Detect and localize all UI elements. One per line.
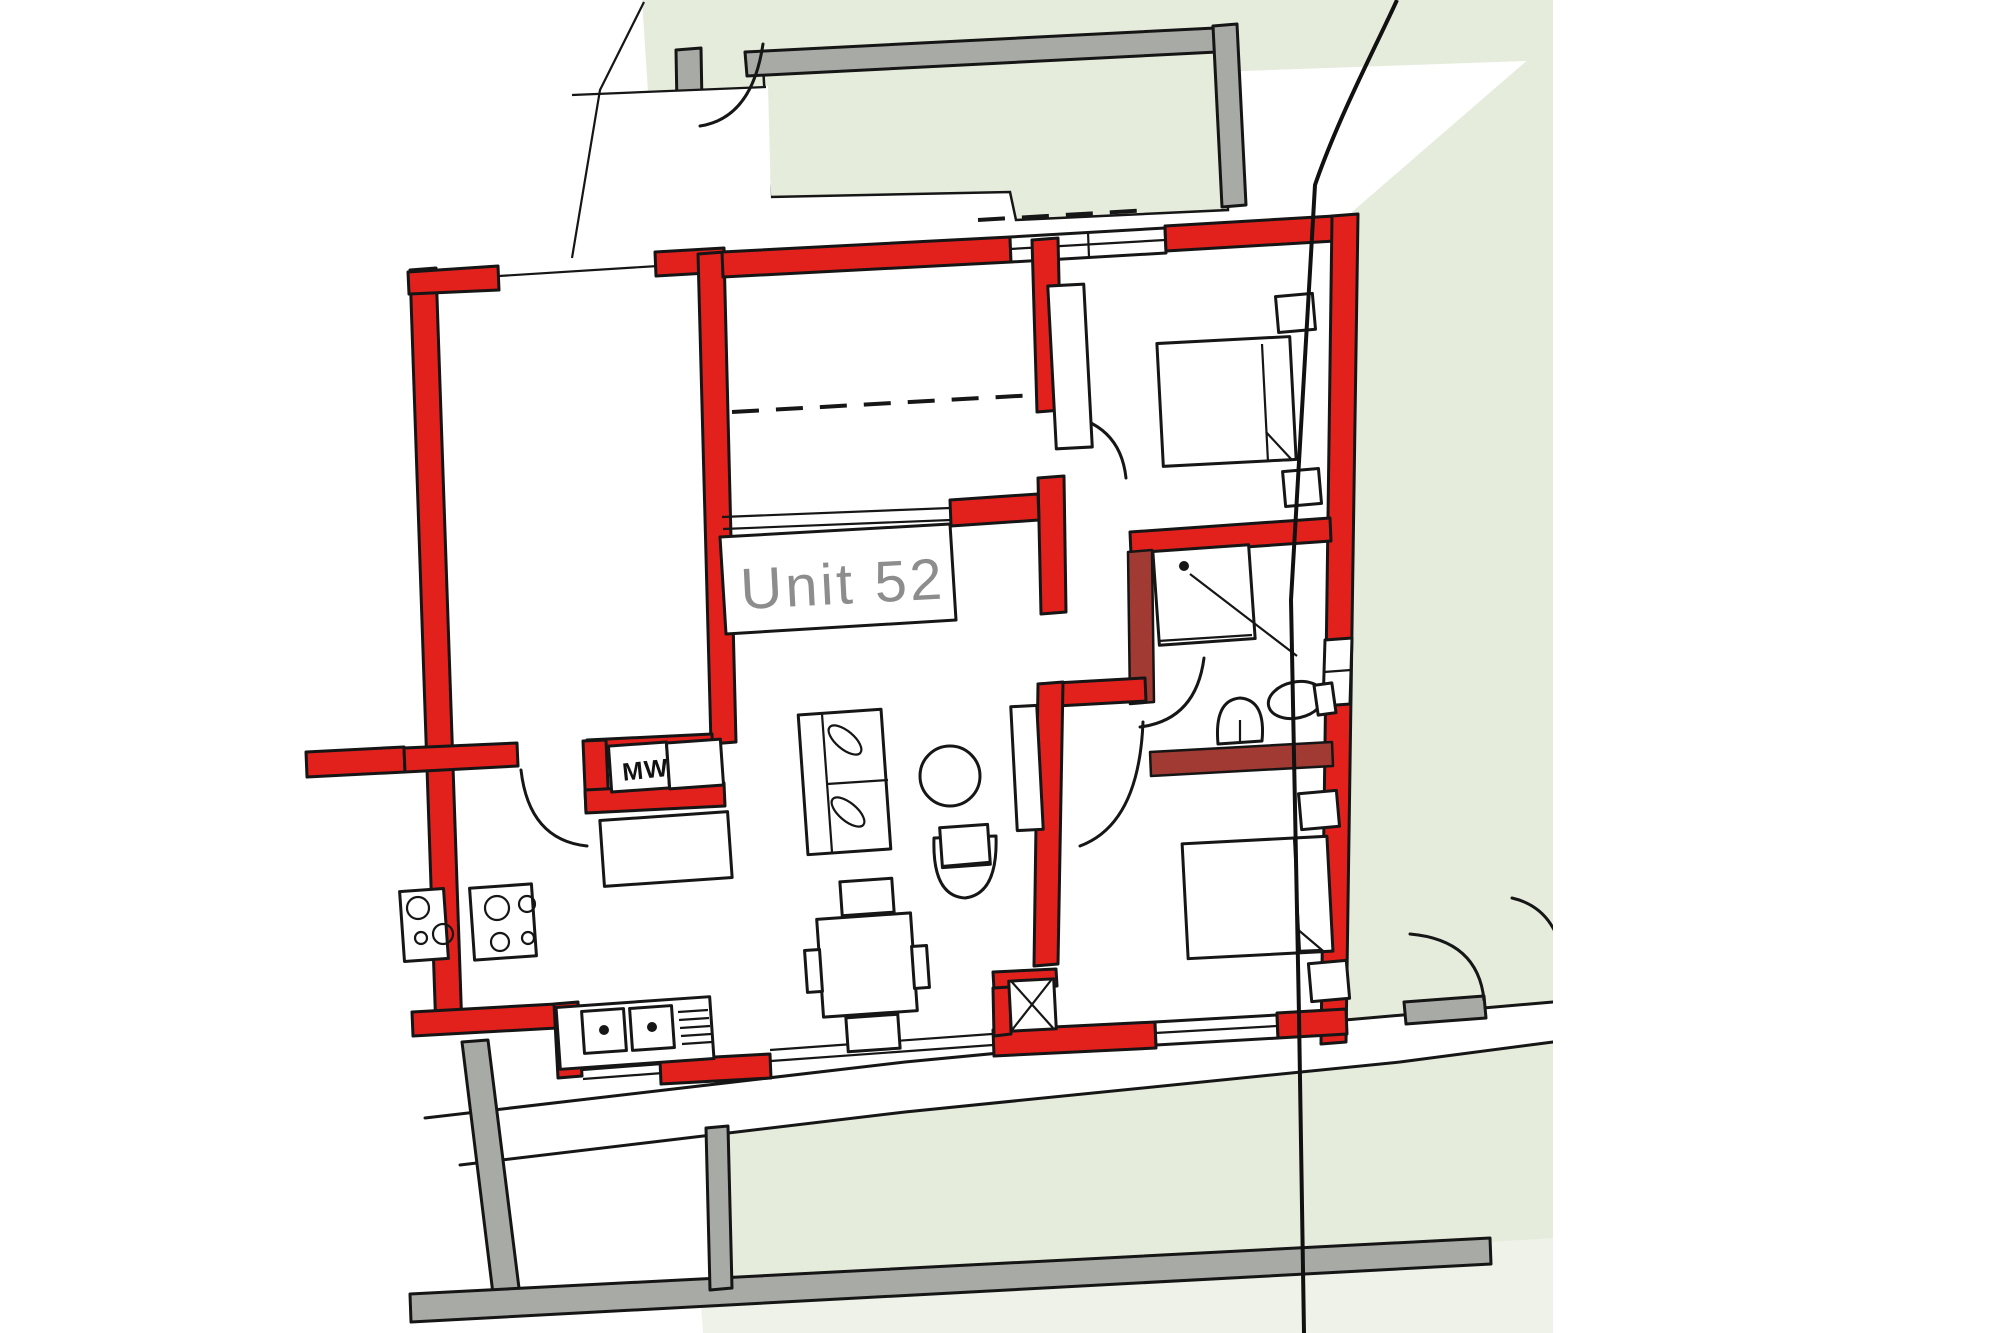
storage-door-arc	[521, 770, 587, 846]
floorplan-drawing: MW	[0, 0, 2000, 1333]
wall-hall-west	[698, 252, 736, 744]
bathroom	[1153, 545, 1336, 744]
right-margin	[1553, 0, 2000, 1333]
bed	[1157, 337, 1296, 467]
wall-left-stub	[306, 747, 405, 777]
bedroom-1	[1048, 284, 1322, 506]
wall-nw-stub	[408, 266, 499, 294]
outdoor-areas	[642, 0, 1553, 1333]
kitchen-cabinet	[666, 739, 723, 789]
sink-drain-icon	[599, 1025, 609, 1035]
unit-label: Unit 52	[739, 546, 947, 622]
floorplan-page: MW	[0, 0, 2000, 1333]
tub-chair-seat	[940, 824, 991, 867]
sliding-partition-1	[722, 508, 950, 517]
nightstand	[1299, 790, 1340, 829]
wall-north-a	[722, 237, 1011, 277]
wall-south-se-corner	[1277, 1009, 1347, 1038]
coffee-table	[920, 746, 980, 806]
kitchen-counter	[600, 812, 732, 887]
gray-wall-garden-divider	[706, 1126, 732, 1290]
green-right-band	[1344, 38, 1553, 1028]
shower	[1153, 545, 1255, 645]
unit-label-box: Unit 52	[720, 524, 956, 634]
wall-bed1-west-b	[1038, 476, 1066, 614]
living-room	[798, 709, 996, 1052]
nightstand	[1308, 960, 1349, 1001]
dining-chair-side	[912, 945, 930, 988]
wall-dining-partition	[950, 494, 1039, 526]
storage-top-line	[499, 266, 658, 276]
sill-kitchen-2	[583, 1073, 663, 1079]
left-margin	[0, 0, 300, 1333]
dining-chair	[846, 1014, 900, 1052]
dining-table	[817, 913, 918, 1017]
gray-wall-stub-se	[1404, 996, 1486, 1024]
shower-head-icon	[1179, 561, 1189, 571]
nightstand	[1283, 468, 1322, 506]
gray-party-wall-sw	[462, 1040, 520, 1302]
microwave-label: MW	[621, 754, 670, 787]
window-north-divider	[1088, 232, 1089, 257]
lobby-floor	[560, 86, 772, 264]
bedroom-2	[1182, 790, 1349, 1001]
dashed-roof-line	[732, 395, 1035, 412]
hall-cupboard	[1011, 705, 1043, 830]
wall-bath-south	[1150, 742, 1333, 776]
wall-storage-south-a	[404, 743, 518, 772]
wardrobe	[1048, 284, 1092, 449]
sink-drain-icon	[647, 1022, 657, 1032]
toilet-tank	[1314, 683, 1336, 715]
dining-chair	[840, 878, 894, 916]
bed2-door-arc	[1080, 722, 1143, 846]
dining-chair-side	[805, 949, 823, 992]
